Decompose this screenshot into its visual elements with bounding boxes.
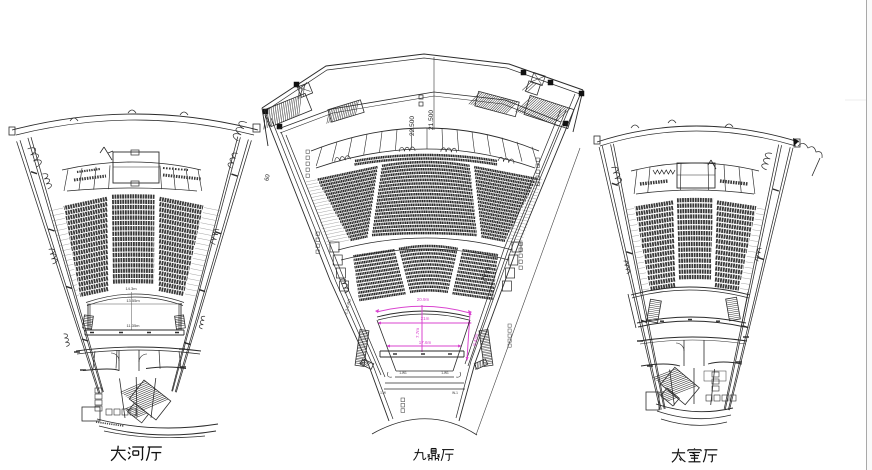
svg-text:14.3m: 14.3m <box>125 286 137 291</box>
svg-text:1-W1: 1-W1 <box>441 371 449 375</box>
svg-text:20.9m: 20.9m <box>417 297 430 302</box>
svg-text:17.6m: 17.6m <box>419 340 432 345</box>
svg-text:13.55m: 13.55m <box>126 298 140 303</box>
svg-text:1-W: 1-W <box>380 391 386 395</box>
svg-text:21.500: 21.500 <box>428 110 435 130</box>
svg-text:1-W1: 1-W1 <box>399 371 407 375</box>
svg-text:W-1: W-1 <box>452 391 458 395</box>
svg-text:22.500: 22.500 <box>409 116 416 136</box>
svg-text:11.35m: 11.35m <box>126 323 140 328</box>
svg-text:7.7m: 7.7m <box>415 328 420 338</box>
